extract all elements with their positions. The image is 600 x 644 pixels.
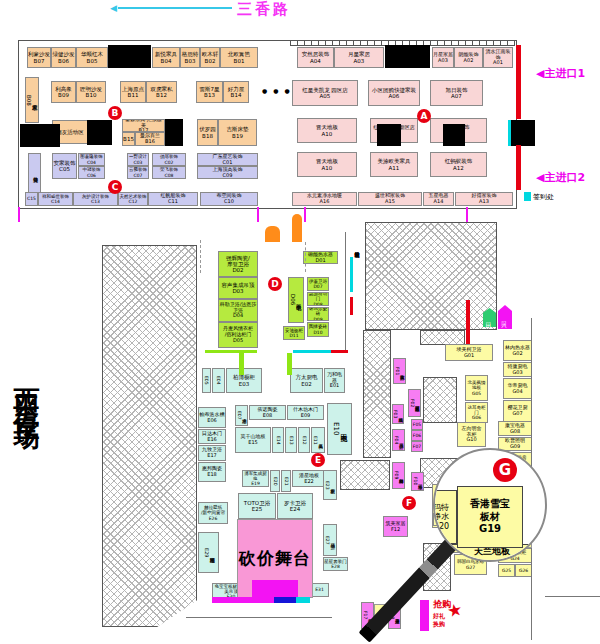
booth-E15[interactable]: 莫干山地板 E15 — [235, 427, 271, 453]
black-block — [165, 119, 183, 146]
black-block — [511, 120, 535, 146]
booth-A05[interactable]: 红星美凯龙 园区店 A05 — [292, 80, 358, 106]
booth-G25[interactable]: G25 — [498, 564, 515, 577]
booth-A03[interactable]: 月星家居 A03 — [334, 47, 384, 68]
booth-A14[interactable]: 五星电器 A14 — [423, 192, 454, 206]
magenta-block — [420, 600, 429, 631]
booth-E29[interactable]: 格瑞特家居 E29 — [198, 532, 219, 573]
hatched-zone — [420, 330, 465, 345]
booth-G19-code: G19 — [479, 523, 501, 536]
booth-area[interactable]: 佳得义装饰 — [28, 153, 41, 193]
booth-E04[interactable]: E04 — [212, 368, 225, 393]
magenta-block — [18, 207, 20, 222]
black-block — [377, 124, 401, 146]
gray-block — [545, 596, 600, 597]
booth-E21[interactable]: E21 — [281, 470, 291, 492]
booth-D02[interactable]: 强辉陶瓷/ 摩登卫浴 D02 — [218, 251, 258, 277]
lime-block — [205, 350, 257, 353]
booth-F10[interactable]: 东贝墙板 F10 — [411, 472, 424, 491]
booth-A15[interactable]: 盛世和家装饰 A15 — [358, 192, 422, 206]
booth-E16[interactable]: 日达木门 E16 — [198, 429, 226, 444]
lime-block — [287, 353, 292, 375]
booth-F07[interactable]: F07 — [411, 441, 423, 452]
booth-G20-partial: 玛特 净水 G20 — [433, 490, 457, 544]
zone-badge-A: A — [417, 109, 431, 123]
main-entrance-2-label: ◀主进口2 — [536, 170, 585, 185]
booth-G26[interactable]: G26 — [515, 564, 532, 577]
separator-dots: ●●● — [262, 87, 296, 94]
booth-C09[interactable]: 上海顶高装饰 C09 — [197, 166, 258, 179]
black-block — [20, 124, 60, 147]
hatched-zone — [423, 377, 457, 423]
booth-E26[interactable]: 赫拉壁纸 /新空间窗帘 E26 — [198, 502, 228, 524]
booth-G08[interactable]: 康宝电器 G08 — [498, 421, 532, 436]
booth-B01[interactable]: 北欧篱笆 B01 — [220, 47, 258, 68]
booth-D06[interactable]: 老板电器 D06 — [288, 277, 304, 323]
booth-E18[interactable]: 惠邦陶瓷 E18 — [198, 462, 226, 482]
booth-D09[interactable]: 诺贝尔瓷砖 D09 — [307, 307, 329, 321]
booth-C07[interactable]: 云腾装饰 C07 — [127, 166, 149, 179]
booth-E28[interactable]: 星星套装门 E28 — [323, 557, 348, 571]
booth-B08[interactable]: 原木世家 B08 — [25, 77, 39, 123]
booth-G19-highlight[interactable]: 香港雪宝 板材 G19 — [457, 486, 523, 548]
booth-C04[interactable]: 图泰隆装饰 C04 — [78, 153, 105, 166]
road-label: 三香路 — [237, 0, 291, 19]
booth-D07[interactable]: 伊泰卫浴 D07 — [307, 277, 329, 291]
booth-F12[interactable]: 筑美家居 F12 — [383, 516, 408, 537]
cyan-block — [508, 120, 511, 146]
booth-A06[interactable]: 小区团购快捷家装 A06 — [368, 80, 420, 106]
zone-badge-F: F — [402, 496, 416, 510]
booth-E27[interactable]: 能源吊顶 E27 — [323, 524, 337, 556]
entry-badge: 入口 — [498, 305, 512, 329]
booth-E09[interactable]: 什木坊木门 E09 — [287, 405, 324, 420]
booth-G04[interactable]: 华帝厨电 G04 — [503, 378, 532, 399]
cyan-block — [350, 257, 353, 292]
booth-A04[interactable]: 安然居装饰 A04 — [297, 47, 334, 68]
star-icon: ★ — [445, 599, 464, 622]
booth-B11[interactable]: 上海原点 B11 — [120, 81, 146, 103]
booth-D03[interactable]: 容声集成吊顶 D03 — [218, 277, 258, 299]
booth-G01[interactable]: 埃美柯卫浴 G01 — [445, 344, 493, 361]
booth-A13[interactable]: 好得家装饰 A13 — [455, 192, 513, 206]
booth-B02[interactable]: 欧木轩 B02 — [200, 47, 220, 68]
booth-A16[interactable]: 水元素净水地暖 A16 — [292, 192, 357, 206]
dash-block — [200, 240, 202, 273]
booth-B10[interactable]: 匠明沙发 B10 — [76, 81, 106, 103]
booth-F06[interactable]: F06 — [411, 430, 423, 441]
gray-block — [345, 232, 346, 352]
booth-F03[interactable]: 高牌地板 F03 — [392, 404, 404, 424]
booth-E22[interactable]: 港星地板 E22 — [292, 470, 326, 487]
booth-A01[interactable]: 清水江南装饰 A01 — [483, 47, 513, 68]
booth-C05[interactable]: 安家装饰 C05 — [52, 153, 77, 179]
magenta-block — [304, 207, 306, 222]
booth-E14[interactable]: E14 — [272, 427, 284, 453]
booth-G06[interactable]: 达耳奇柜门 G06 — [465, 402, 488, 423]
hatched-zone — [340, 460, 390, 490]
magnifier-circle[interactable]: G 玛特 净水 G20 天兰地板 香港雪宝 板材 G19 — [433, 448, 547, 562]
black-block — [443, 124, 465, 146]
magenta-block — [466, 207, 468, 222]
red-block — [331, 350, 348, 353]
booth-B03[interactable]: 格思特 B03 — [180, 47, 200, 68]
booth-B09[interactable]: 利高象 B09 — [51, 81, 76, 103]
booth-A12[interactable]: 红蚂蚁装饰 A12 — [430, 152, 487, 177]
dash-block — [305, 242, 307, 272]
booth-E13[interactable]: E13 — [285, 427, 297, 453]
orange-block — [265, 226, 280, 242]
aisle-strip-label: 装修日记网明星导购区 — [354, 248, 360, 353]
zone-badge-B: B — [108, 106, 122, 120]
booth-E17[interactable]: 九牧卫浴 E17 — [198, 445, 226, 461]
booth-F05[interactable]: F05 — [411, 419, 423, 430]
zone-badge-D: D — [268, 277, 282, 291]
booth-B16[interactable]: 曼尔百兰 B16 — [135, 132, 165, 146]
booth-E10[interactable]: 奥田厨电 E10 — [327, 403, 352, 455]
gift-swap-label: 好礼 换购 — [433, 612, 445, 628]
booth-A11[interactable]: 美涂欧美家具 A11 — [370, 152, 418, 177]
black-block — [108, 45, 151, 68]
booth-B17[interactable]: 姿森家具 汇宗雅美 B17 — [122, 119, 165, 132]
booth-E25[interactable]: TOTO卫浴 E25 — [238, 493, 276, 519]
hatched-zone — [363, 330, 391, 458]
booth-B13[interactable]: 雷斯7星 B13 — [196, 81, 223, 103]
blue-block — [274, 597, 296, 603]
booth-E20[interactable]: E20 — [270, 470, 280, 492]
booth-E12[interactable]: E12 — [298, 427, 310, 453]
booth-B07[interactable]: 利豪沙发 B07 — [27, 47, 51, 68]
booth-D11[interactable]: 安迪橱柜 D11 — [283, 326, 305, 340]
zone-badge-E: E — [311, 453, 325, 467]
booth-E05[interactable]: E05 — [202, 368, 211, 393]
booth-G19-name: 香港雪宝 板材 — [470, 498, 510, 523]
booth-A03[interactable]: 月星家居 A03 — [432, 47, 454, 68]
red-block — [466, 300, 470, 344]
booth-A10[interactable]: 晋天地板 A10 — [297, 118, 357, 143]
booth-B15[interactable]: B15 — [122, 132, 135, 146]
cyan-block — [293, 350, 331, 353]
booth-A07[interactable]: 旭日装饰 A07 — [430, 80, 483, 106]
cyan-block — [296, 597, 310, 603]
west-parking-label: 西平台停车场 — [10, 368, 45, 568]
booth-E03[interactable]: 柏博橱柜 E03 — [226, 368, 262, 393]
booth-C15[interactable]: C15 — [25, 192, 38, 206]
booth-C02[interactable]: 俏居装饰 C02 — [152, 153, 186, 166]
red-block — [516, 45, 521, 119]
red-block — [350, 297, 353, 315]
booth-E01[interactable]: 万和电器 E01 — [324, 368, 345, 393]
booth-G03[interactable]: 特康厨电 G03 — [503, 362, 532, 377]
booth-G10[interactable]: 左向明舍 衣柜 G10 — [457, 422, 486, 447]
booth-D01[interactable]: 磁能热水器 D01 — [303, 251, 338, 264]
booth-G02[interactable]: 林内热水器 G02 — [503, 340, 532, 361]
booth-B18[interactable]: 伏罗园 B18 — [197, 119, 218, 146]
booth-B19[interactable]: 吉斯床垫 B19 — [218, 119, 257, 146]
orange-block — [292, 214, 302, 242]
booth-A10[interactable]: 晋天地板 A10 — [297, 152, 357, 177]
gray-block — [186, 617, 332, 618]
booth-E23[interactable]: 家纺衣柜 E23 — [323, 470, 337, 500]
booth-C01[interactable]: 广东星艺装饰 C01 — [197, 153, 258, 166]
booth-E24[interactable]: 罗卡卫浴 E24 — [277, 493, 313, 519]
road-arrow-line — [118, 7, 232, 9]
hatched-zone — [365, 222, 497, 330]
hatched-zone-left — [102, 245, 197, 627]
booth-E02[interactable]: 方太厨电 E02 — [290, 368, 323, 393]
booth-E06[interactable]: 帕布洛水槽 E06 — [198, 407, 226, 428]
booth-D05[interactable]: 丹麦风情衣柜 /佰利达柜门 D05 — [218, 322, 258, 348]
booth-C14[interactable]: 祥和盛世装饰 C14 — [38, 192, 73, 206]
magenta-block — [252, 580, 298, 597]
booth-F09[interactable]: 格林格厨电 F09 — [392, 462, 405, 489]
magenta-block — [212, 597, 274, 603]
booth-F02[interactable]: 阿里斯顿热水器 F02 — [408, 389, 421, 417]
booth-C03[interactable]: 一野设计 C03 — [127, 153, 149, 166]
booth-D10[interactable]: 陶缘瓷砖 D10 — [307, 322, 329, 337]
booth-F01[interactable]: 好太太晾衣架 F01 — [393, 358, 406, 384]
booth-C10[interactable]: 布空间装饰 C10 — [200, 192, 258, 206]
booth-C12[interactable]: 天然艺术装饰 C12 — [118, 192, 148, 206]
booth-E19[interactable]: 博军集成厨电 E19 — [242, 470, 269, 487]
zone-badge-C: C — [108, 180, 122, 194]
booth-A02[interactable]: 朗能装饰 A02 — [454, 47, 483, 68]
booth-G07[interactable]: 樱花卫厨 G07 — [503, 400, 532, 422]
zone-badge-G: G — [493, 458, 517, 482]
expo-floor-plan: ◀ 三香路 ●●● ◀主进口1 ◀主进口2 签到处 出口 入口 西平台停车场 装… — [0, 0, 600, 644]
signin-label: 签到处 — [533, 192, 554, 202]
booth-C08[interactable]: 荣飞装饰 C08 — [152, 166, 186, 179]
booth-C11[interactable]: 红帆船装饰 C11 — [148, 192, 198, 206]
booth-F04[interactable]: 好佳喜吊顶 F04 — [392, 429, 405, 451]
booth-B05[interactable]: 华顺红木 B05 — [76, 47, 108, 68]
booth-E11[interactable]: 美的电器 E11 — [311, 427, 325, 453]
booth-E07[interactable]: 启润净水 E07 — [235, 405, 248, 426]
booth-B14[interactable]: 好力屋 B14 — [223, 81, 249, 103]
booth-D08[interactable]: 惠源滑动门 D08 — [307, 292, 329, 306]
lime-block — [239, 353, 244, 375]
booth-G05[interactable]: 北美枫情 地板 G05 — [465, 375, 488, 401]
booth-B04[interactable]: 新悦家具 B04 — [152, 47, 180, 68]
black-block — [87, 120, 112, 145]
booth-B06[interactable]: 绿健沙发 B06 — [51, 47, 76, 68]
booth-B12[interactable]: 双虎家私 B12 — [146, 81, 177, 103]
booth-C06[interactable]: 中冠装饰 C06 — [78, 166, 105, 179]
cyan-block — [524, 192, 531, 201]
road-arrow-icon: ◀ — [110, 3, 117, 13]
booth-C13[interactable]: 灰护设计装饰 C13 — [73, 192, 118, 206]
booth-D04[interactable]: 科勒卫浴/法恩莎卫浴 D04 — [218, 299, 258, 322]
red-block — [516, 145, 521, 190]
booth-E08[interactable]: 依诺陶瓷 E08 — [249, 405, 286, 420]
main-entrance-1-label: ◀主进口1 — [536, 66, 585, 81]
black-block — [385, 45, 430, 68]
magenta-block — [257, 207, 259, 222]
